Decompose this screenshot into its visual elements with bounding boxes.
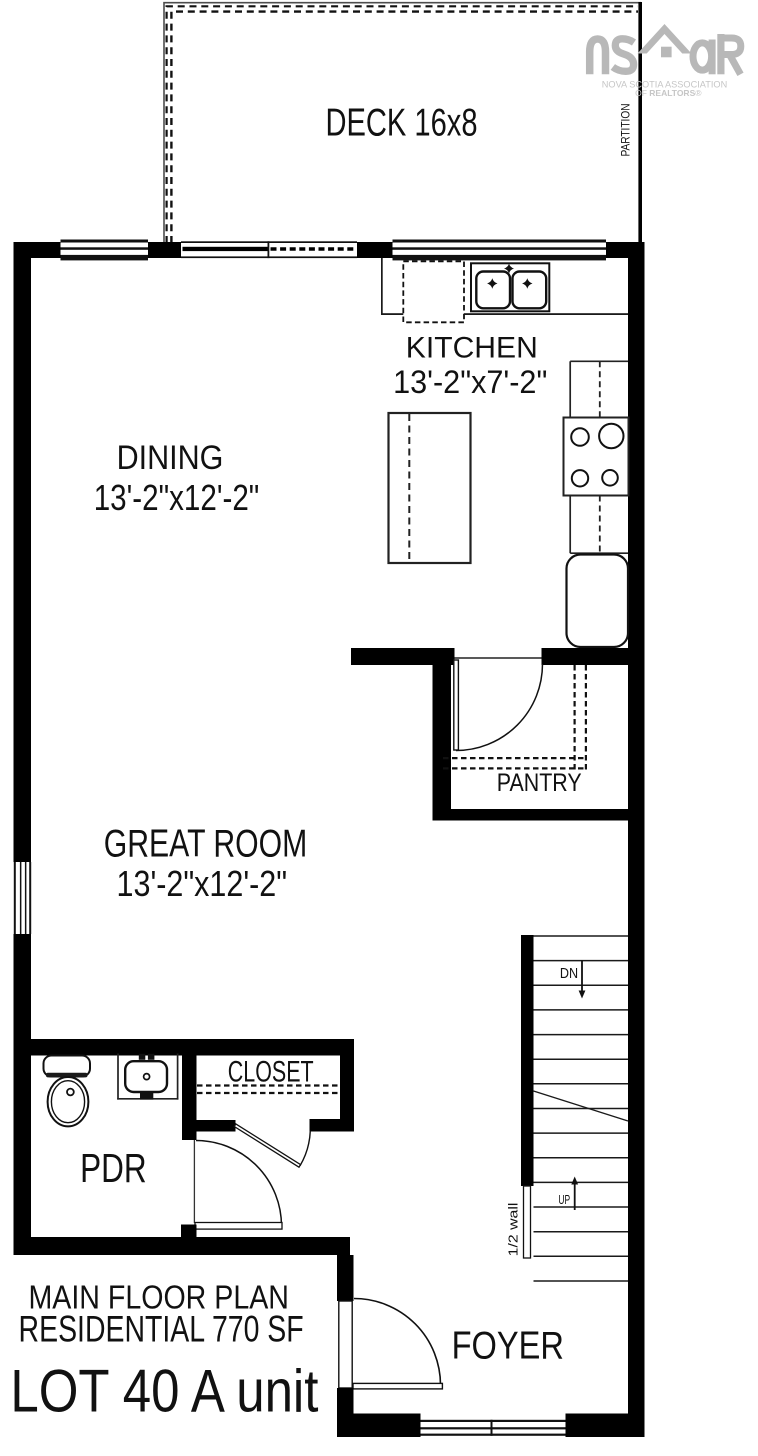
svg-text:GREAT ROOM: GREAT ROOM — [104, 822, 307, 866]
svg-text:FOYER: FOYER — [452, 1323, 564, 1368]
svg-text:PARTITION: PARTITION — [620, 103, 633, 156]
svg-text:OF REALTORS®: OF REALTORS® — [635, 88, 702, 98]
svg-text:13'-2"x12'-2": 13'-2"x12'-2" — [94, 477, 260, 517]
svg-text:DN: DN — [560, 965, 578, 981]
svg-text:PANTRY: PANTRY — [497, 769, 582, 797]
svg-text:RESIDENTIAL 770 SF: RESIDENTIAL 770 SF — [19, 1309, 304, 1351]
svg-text:DECK 16x8: DECK 16x8 — [326, 102, 478, 145]
svg-text:13'-2"x7'-2": 13'-2"x7'-2" — [393, 364, 547, 400]
svg-text:UP: UP — [558, 1193, 570, 1207]
svg-text:CLOSET: CLOSET — [228, 1056, 314, 1088]
svg-text:DINING: DINING — [117, 439, 224, 477]
svg-text:PDR: PDR — [80, 1145, 147, 1191]
svg-text:LOT 40 A unit: LOT 40 A unit — [10, 1358, 319, 1425]
svg-text:13'-2"x12'-2": 13'-2"x12'-2" — [117, 865, 288, 905]
svg-text:KITCHEN: KITCHEN — [406, 332, 538, 365]
svg-text:1/2 wall: 1/2 wall — [507, 1203, 521, 1257]
